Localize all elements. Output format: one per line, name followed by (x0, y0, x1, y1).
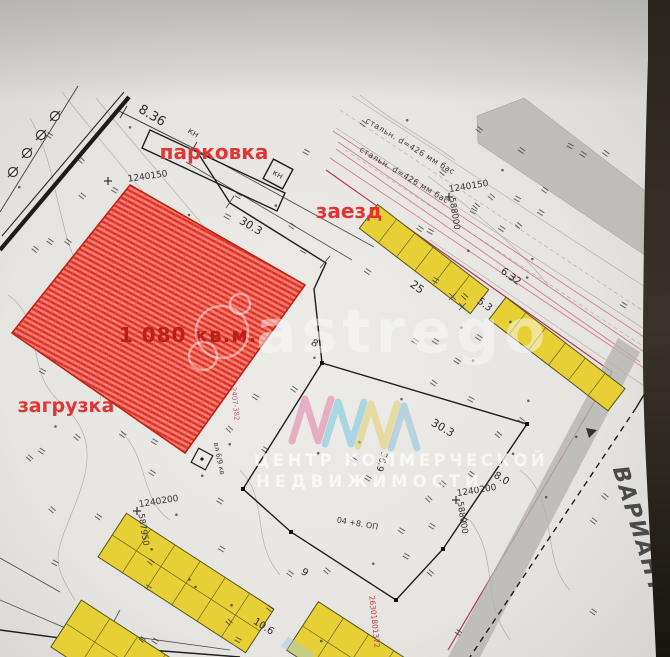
area-label: 1 080 кв.м. (119, 323, 257, 347)
watermark-line1: ЦЕНТР КОММЕРЧЕСКОЙ (254, 451, 548, 470)
parking-label: парковка (160, 140, 269, 164)
watermark-brand: astrego (256, 297, 550, 367)
site-plan-photo: кн (0, 0, 670, 657)
watermark-line2: НЕДВИЖИМОСТИ (256, 472, 484, 491)
loading-label: загрузка (18, 395, 115, 417)
cadastral-site-plan: кн (0, 0, 670, 657)
paper-top-margin (0, 0, 670, 100)
entry-label: заезд (316, 199, 382, 223)
